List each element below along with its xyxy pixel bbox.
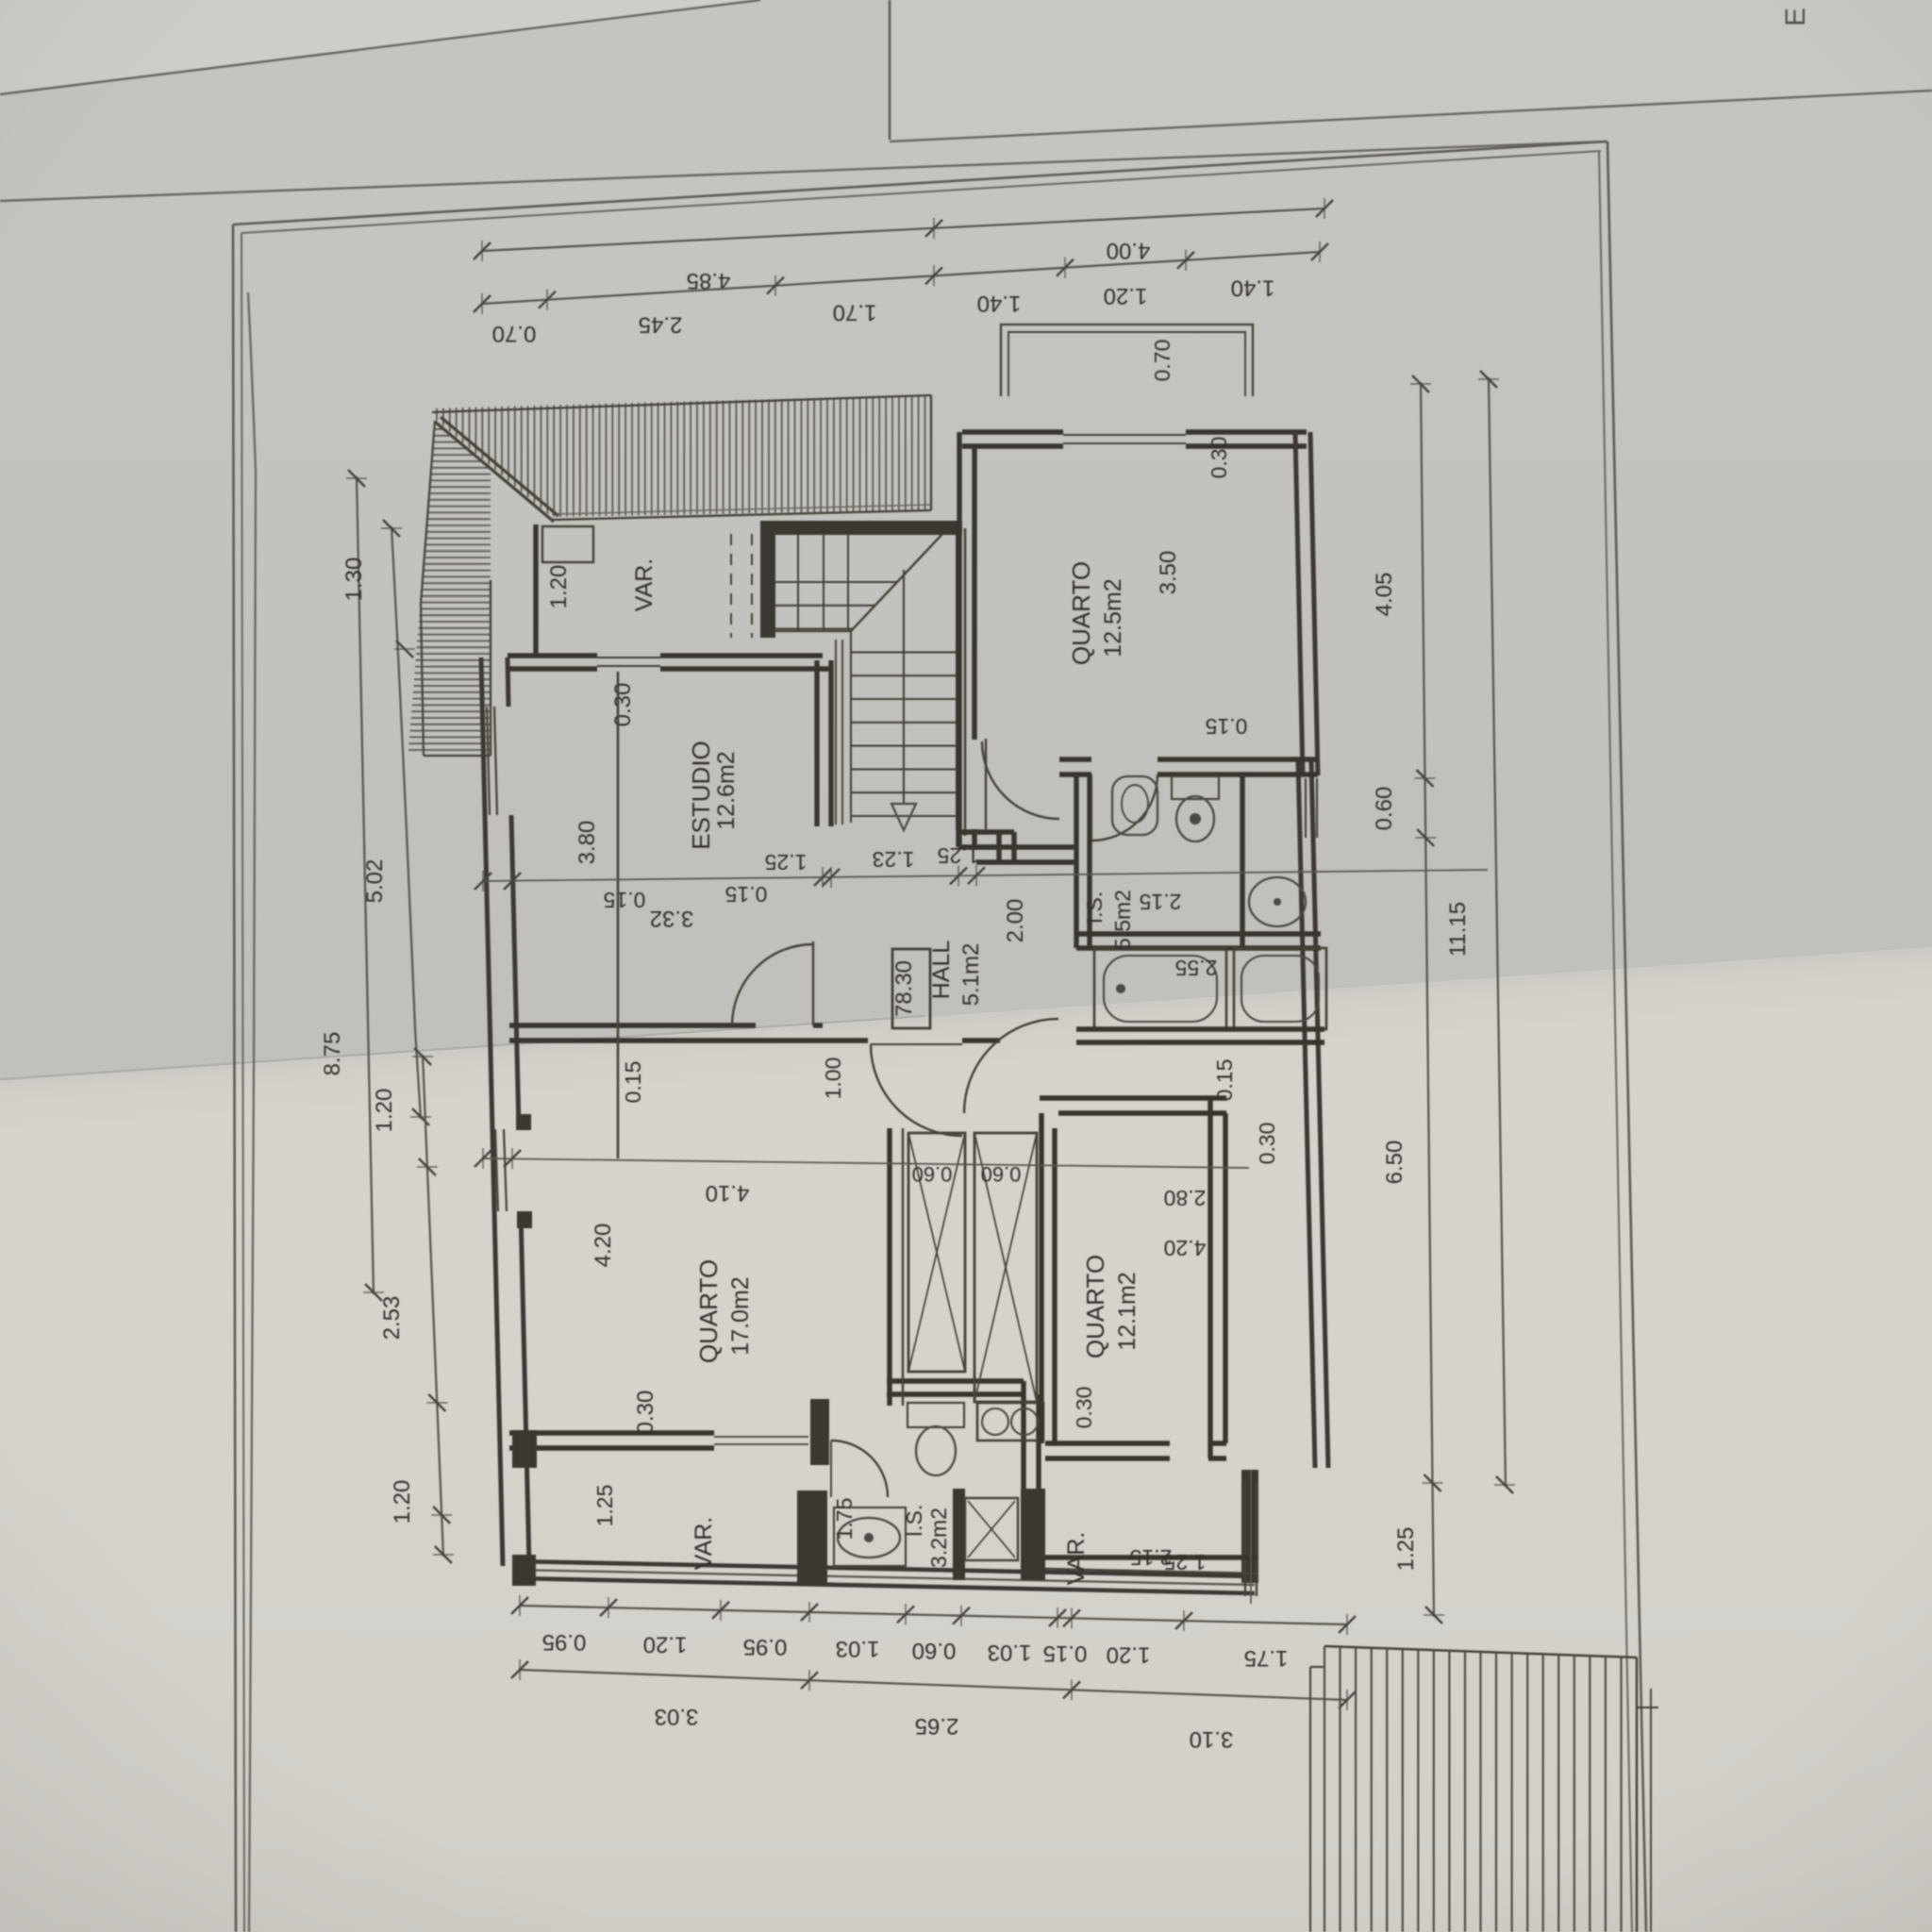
svg-text:1.20: 1.20 <box>1104 283 1148 308</box>
svg-text:1.25: 1.25 <box>765 850 808 874</box>
svg-text:0.15: 0.15 <box>1043 1641 1088 1666</box>
svg-text:I.S.: I.S. <box>902 1505 926 1538</box>
svg-text:6.50: 6.50 <box>1382 1141 1407 1185</box>
svg-text:2.00: 2.00 <box>1003 899 1028 943</box>
svg-text:0.30: 0.30 <box>610 683 636 727</box>
svg-text:QUARTO: QUARTO <box>1067 561 1095 665</box>
svg-text:0.95: 0.95 <box>542 1629 587 1655</box>
svg-text:1.03: 1.03 <box>988 1640 1032 1665</box>
svg-text:1.25: 1.25 <box>938 843 980 868</box>
svg-text:E: E <box>1780 8 1811 26</box>
svg-text:1.30: 1.30 <box>341 558 367 602</box>
svg-text:I.S.: I.S. <box>1082 891 1107 924</box>
svg-text:0.60: 0.60 <box>912 1162 953 1186</box>
svg-text:1.00: 1.00 <box>821 1058 845 1100</box>
svg-text:1.70: 1.70 <box>833 300 877 325</box>
svg-text:0.15: 0.15 <box>621 1061 645 1104</box>
svg-text:VAR.: VAR. <box>691 1517 717 1571</box>
svg-text:VAR.: VAR. <box>631 558 658 612</box>
svg-text:4.20: 4.20 <box>591 1224 616 1268</box>
svg-text:1.25: 1.25 <box>592 1485 617 1527</box>
svg-text:1.20: 1.20 <box>643 1632 688 1657</box>
svg-text:0.70: 0.70 <box>492 321 537 346</box>
svg-text:2.55: 2.55 <box>1175 956 1218 980</box>
svg-text:17.0m2: 17.0m2 <box>727 1276 754 1355</box>
svg-text:1.40: 1.40 <box>977 291 1022 316</box>
svg-text:1.23: 1.23 <box>873 847 915 872</box>
svg-text:78.30: 78.30 <box>891 960 917 1017</box>
svg-text:4.05: 4.05 <box>1372 573 1397 617</box>
svg-text:HALL: HALL <box>928 941 955 1000</box>
svg-text:2.45: 2.45 <box>639 311 683 337</box>
svg-text:1.20: 1.20 <box>546 565 572 609</box>
svg-text:2.53: 2.53 <box>379 1296 405 1341</box>
svg-text:0.15: 0.15 <box>604 888 646 912</box>
svg-text:QUARTO: QUARTO <box>694 1259 723 1363</box>
svg-text:1.20: 1.20 <box>390 1480 415 1524</box>
svg-text:0.30: 0.30 <box>1072 1387 1096 1429</box>
svg-text:1.20: 1.20 <box>372 1089 397 1133</box>
svg-text:3.80: 3.80 <box>575 821 600 865</box>
svg-text:12.6m2: 12.6m2 <box>713 751 740 829</box>
svg-text:0.30: 0.30 <box>1207 437 1231 479</box>
svg-text:1.20: 1.20 <box>1107 1642 1151 1668</box>
svg-text:4.00: 4.00 <box>1107 238 1151 263</box>
svg-text:5.1m2: 5.1m2 <box>958 943 984 1007</box>
svg-text:1.75: 1.75 <box>1244 1645 1289 1671</box>
svg-text:1.75: 1.75 <box>832 1498 857 1541</box>
svg-text:2.80: 2.80 <box>1164 1186 1207 1210</box>
svg-text:0.60: 0.60 <box>1372 787 1397 831</box>
svg-text:1.25: 1.25 <box>1393 1527 1419 1572</box>
svg-text:5.5m2: 5.5m2 <box>1110 890 1135 950</box>
svg-text:0.60: 0.60 <box>912 1638 957 1663</box>
svg-text:4.10: 4.10 <box>706 1180 750 1206</box>
svg-text:1.25: 1.25 <box>1164 1550 1207 1574</box>
svg-text:2.65: 2.65 <box>915 1713 959 1739</box>
svg-text:3.03: 3.03 <box>655 1704 699 1729</box>
svg-text:11.15: 11.15 <box>1445 902 1471 957</box>
svg-text:VAR.: VAR. <box>1063 1532 1090 1586</box>
svg-text:3.50: 3.50 <box>1156 551 1181 595</box>
svg-text:12.1m2: 12.1m2 <box>1114 1272 1141 1350</box>
svg-text:1.03: 1.03 <box>836 1636 880 1661</box>
svg-text:ESTUDIO: ESTUDIO <box>687 741 715 850</box>
svg-text:3.10: 3.10 <box>1190 1726 1234 1752</box>
svg-text:0.70: 0.70 <box>1150 340 1174 382</box>
svg-text:12.5m2: 12.5m2 <box>1100 578 1126 657</box>
svg-text:0.30: 0.30 <box>633 1391 658 1435</box>
svg-text:3.2m2: 3.2m2 <box>926 1507 951 1568</box>
svg-text:0.15: 0.15 <box>1206 714 1248 739</box>
svg-text:QUARTO: QUARTO <box>1081 1255 1109 1358</box>
svg-text:1.40: 1.40 <box>1231 275 1275 300</box>
svg-text:0.95: 0.95 <box>743 1634 788 1659</box>
svg-text:5.02: 5.02 <box>362 859 388 904</box>
svg-text:0.30: 0.30 <box>1255 1123 1279 1165</box>
svg-text:0.15: 0.15 <box>1212 1059 1237 1102</box>
svg-text:2.15: 2.15 <box>1140 890 1182 914</box>
svg-text:8.75: 8.75 <box>320 1032 345 1076</box>
svg-text:0.15: 0.15 <box>725 882 768 907</box>
svg-text:3.32: 3.32 <box>650 906 694 931</box>
svg-text:4.20: 4.20 <box>1164 1236 1207 1260</box>
